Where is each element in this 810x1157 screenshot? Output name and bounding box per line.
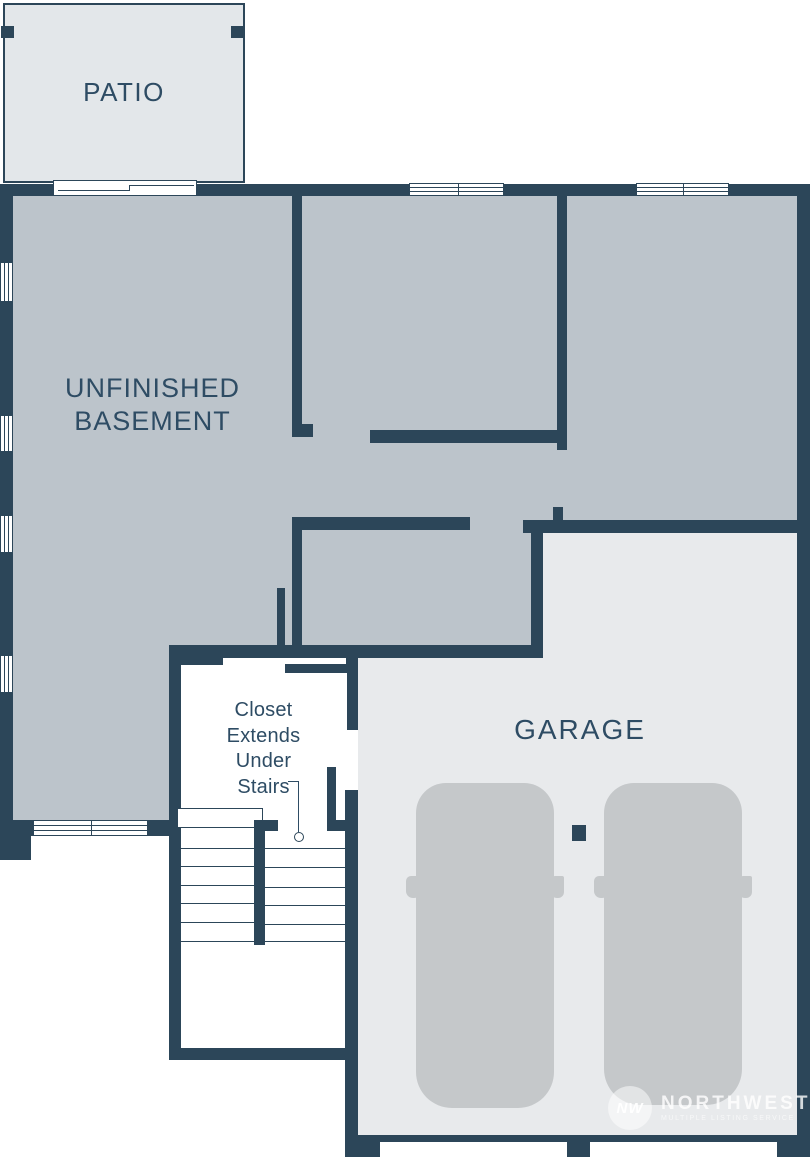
- stair-tread-line: [181, 941, 345, 942]
- sliding-door-panel-line: [58, 190, 129, 191]
- garage-door-opening-right: [590, 1141, 777, 1157]
- wall-room-divider-left: [292, 196, 302, 437]
- wall-middle-room-right: [531, 520, 543, 658]
- window-top-1: [409, 183, 504, 196]
- wall-closet-jog: [327, 820, 345, 831]
- stair-tread-line: [181, 866, 254, 867]
- window-left-4: [0, 655, 13, 693]
- garage-door-opening-left: [380, 1141, 567, 1157]
- closet-door-knob-marker: [294, 832, 304, 842]
- patio-label: PATIO: [3, 77, 245, 108]
- wall-stub: [277, 588, 285, 645]
- car-left: [416, 783, 554, 1108]
- window-left-1: [0, 262, 13, 302]
- wall-closet-east-upper: [347, 655, 358, 730]
- stair-tread-line: [181, 922, 254, 923]
- watermark-logo-icon: NW: [608, 1086, 652, 1130]
- watermark-subtitle: MULTIPLE LISTING SERVICE: [661, 1115, 810, 1122]
- stair-tread-line: [265, 905, 345, 906]
- patio-label-text: PATIO: [83, 77, 165, 107]
- sliding-door-panel-line: [129, 185, 194, 186]
- basement-label-line1: UNFINISHED: [30, 372, 275, 405]
- car-right-mirror: [738, 876, 752, 898]
- watermark: NW NORTHWEST MULTIPLE LISTING SERVICE: [608, 1086, 810, 1130]
- wall-stairwell-bottom: [169, 1048, 358, 1060]
- stair-top-tread: [177, 808, 263, 828]
- car-left-mirror: [550, 876, 564, 898]
- closet-label-line3: Under: [196, 749, 331, 775]
- wall-door-tick: [553, 507, 563, 520]
- stair-tread-line: [265, 924, 345, 925]
- window-left-2: [0, 415, 13, 452]
- wall-middle-room-top-left: [292, 517, 470, 530]
- basement-floor: [13, 196, 798, 520]
- wall-right-exterior: [797, 184, 810, 1157]
- stair-stringer-arm: [265, 820, 278, 831]
- window-bottom: [33, 820, 148, 836]
- closet-door-opening: [348, 730, 358, 790]
- stair-tread-line: [265, 848, 345, 849]
- basement-label-line2: BASEMENT: [30, 405, 275, 438]
- wall-middle-room-left: [292, 517, 302, 656]
- floor-plan: PATIO UNFINISHED BASEMENT GARAGE Closet …: [0, 0, 810, 1157]
- wall-divider-foot: [302, 424, 313, 437]
- car-right-mirror: [594, 876, 608, 898]
- basement-floor: [13, 520, 531, 645]
- basement-floor: [13, 645, 169, 826]
- window-mullion: [458, 184, 459, 195]
- stair-tread-line: [181, 848, 254, 849]
- sliding-door-patio: [53, 180, 197, 196]
- car-right: [604, 783, 742, 1105]
- garage-label-text: GARAGE: [514, 714, 646, 745]
- wall-room-horizontal: [370, 430, 563, 443]
- patio-post-left: [1, 26, 14, 38]
- car-left-mirror: [406, 876, 420, 898]
- wall-corner-foot: [0, 836, 31, 860]
- wall-stairwell-west: [169, 645, 181, 1060]
- wall-garage-top: [523, 520, 798, 533]
- window-mullion: [683, 184, 684, 195]
- closet-label-line1: Closet: [196, 698, 331, 724]
- window-top-2: [636, 183, 729, 196]
- garage-label: GARAGE: [468, 714, 692, 746]
- closet-label-line4: Stairs: [196, 775, 331, 801]
- closet-label-line2: Extends: [196, 724, 331, 750]
- patio-post-right: [231, 26, 244, 38]
- garage-post: [572, 825, 586, 841]
- wall-garage-west: [345, 790, 358, 1157]
- stair-tread-line: [265, 867, 345, 868]
- stair-stringer: [254, 820, 265, 945]
- wall-closet-lip: [285, 664, 348, 673]
- basement-label: UNFINISHED BASEMENT: [30, 372, 275, 438]
- watermark-monogram: NW: [617, 1100, 644, 1117]
- stair-tread-line: [265, 887, 345, 888]
- wall-room-divider-right: [557, 196, 567, 450]
- stair-tread-line: [181, 903, 254, 904]
- watermark-brand: NORTHWEST: [661, 1094, 810, 1113]
- stair-tread-line: [181, 885, 254, 886]
- watermark-text: NORTHWEST MULTIPLE LISTING SERVICE: [661, 1094, 810, 1122]
- closet-label: Closet Extends Under Stairs: [196, 698, 331, 800]
- window-mullion: [91, 821, 92, 835]
- window-left-3: [0, 515, 13, 553]
